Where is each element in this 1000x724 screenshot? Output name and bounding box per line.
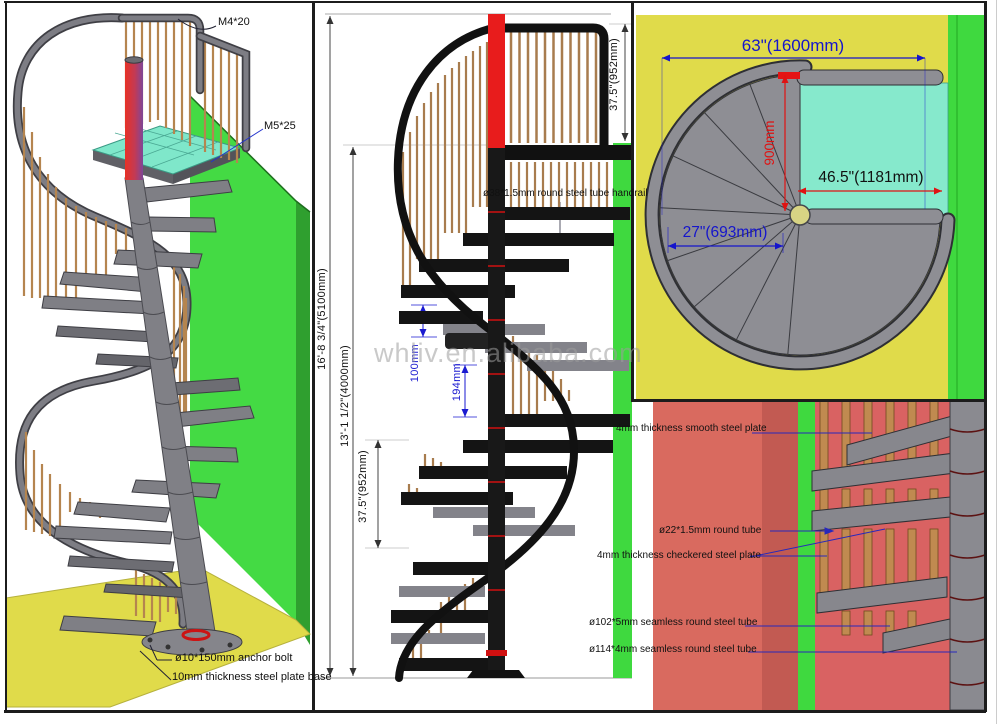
frame-left [5,1,7,712]
plan-center-column [790,205,810,225]
note-checkered-plate: 4mm thickness checkered steel plate [597,550,761,561]
note-round-tube: ø22*1.5mm round tube [659,525,761,536]
dim-total-height: 16'-8 3/4"(5100mm) [316,268,328,370]
watermark: whliv.en.alibaba.com [374,338,643,369]
dim-landing-depth: 900mm [762,120,777,165]
dim-landing-width: 46.5"(1181mm) [818,169,923,186]
plan-wall-strip [948,15,985,399]
label-m5: M5*25 [264,120,296,132]
note-tube-114: ø114*4mm seamless round steel tube [589,644,757,655]
plan-post-marker [778,72,800,79]
label-base-plate: 10mm thickness steel plate base [172,671,332,683]
dim-guardrail-height: 37.5"(952mm) [608,38,620,111]
dim-overall-width: 63"(1600mm) [742,36,844,55]
label-m4: M4*20 [218,16,250,28]
frame-bottom [4,710,986,713]
note-tube-102: ø102*5mm seamless round steel tube [589,617,757,628]
note-smooth-plate: 4mm thickness smooth steel plate [616,423,767,434]
note-handrail: ø38*1.5mm round steel tube handrail [483,188,648,199]
dim-floor-to-landing: 13'-1 1/2"(4000mm) [339,345,351,447]
divider-iso-elevation [312,1,315,712]
dim-lower-section: 37.5"(952mm) [357,450,369,523]
elevation-guardrail [505,28,604,145]
red-center-post [125,57,143,180]
frame-top [4,1,986,3]
divider-plan-detail [631,399,986,402]
plan-landing [800,83,948,215]
label-anchor-bolt: ø10*150mm anchor bolt [175,652,292,664]
dim-tread-width: 27"(693mm) [683,224,768,241]
iso-view-drawing [6,2,313,712]
plan-view-drawing: 63"(1600mm) 900mm 46.5"(1181mm) 27"(693m… [633,3,985,399]
frame-right [984,1,987,712]
drawing-sheet: 63"(1600mm) 900mm 46.5"(1181mm) 27"(693m… [0,0,1000,724]
platform-slab [505,145,632,160]
green-wall [190,96,310,645]
edge-line-right [996,0,997,724]
detail-center-column [950,401,985,710]
